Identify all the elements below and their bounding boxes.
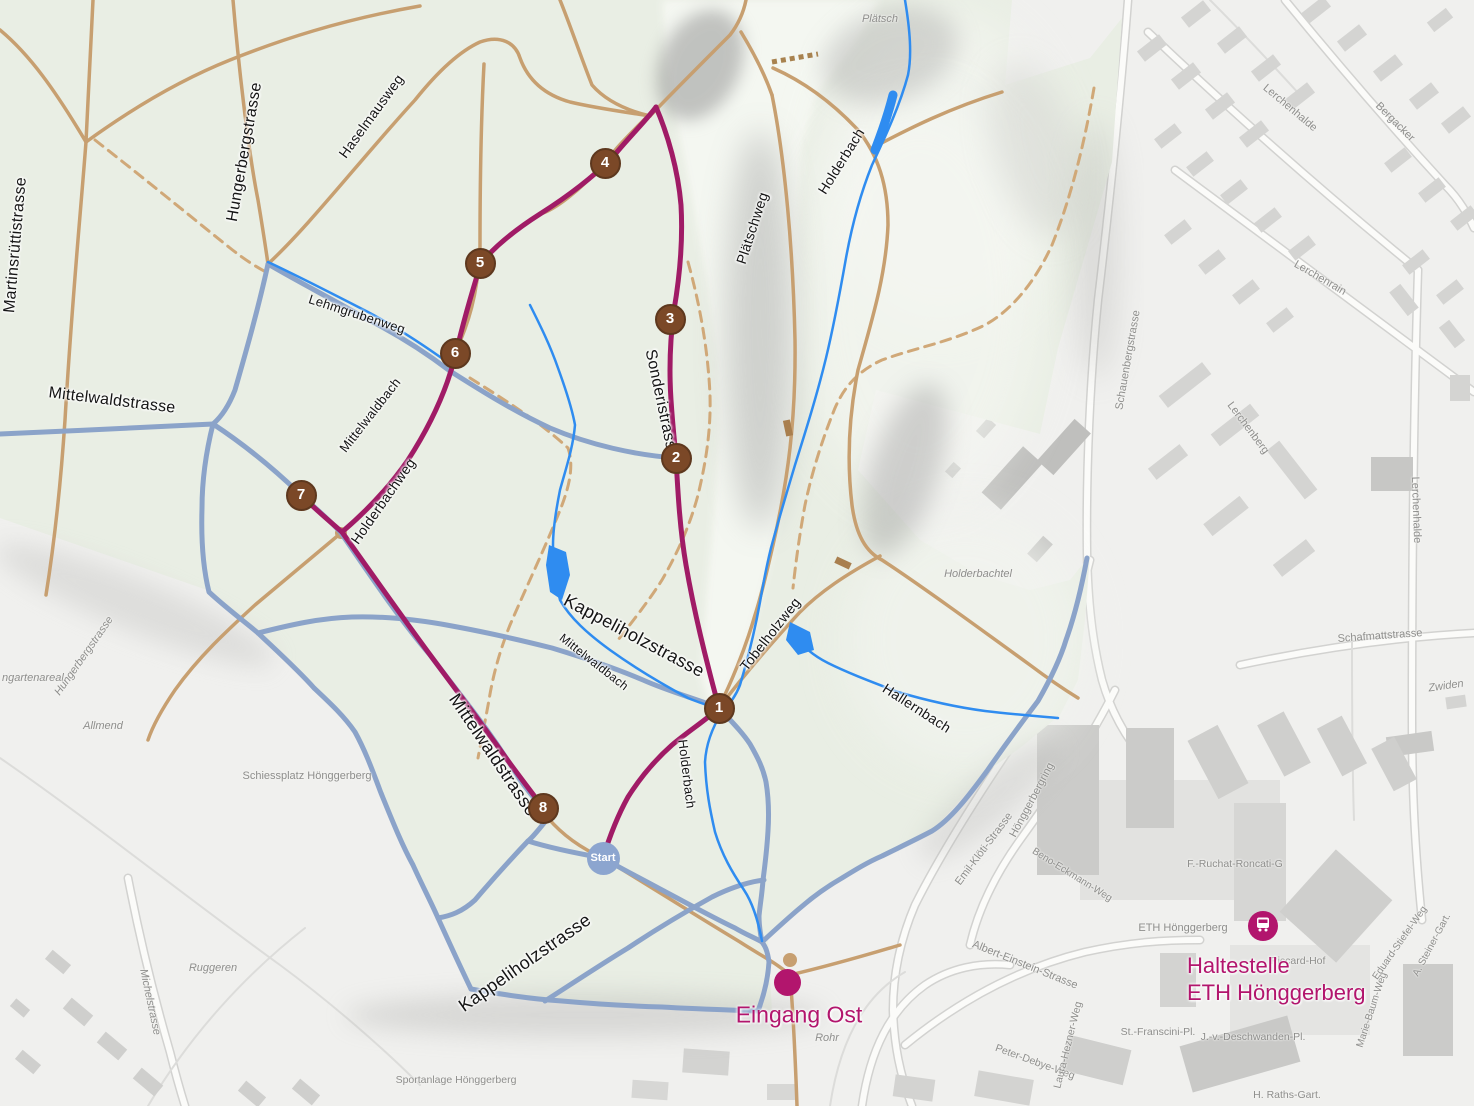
street-label-raths-gart: H. Raths-Gart. bbox=[1253, 1089, 1321, 1101]
bus-stop-label-line2: ETH Hönggerberg bbox=[1187, 979, 1366, 1006]
map-canvas[interactable]: Martinsrüttistrasse Hungerbergstrasse Ha… bbox=[0, 0, 1474, 1106]
area-label-ruggeren: Ruggeren bbox=[189, 962, 237, 974]
route-marker-5[interactable]: 5 bbox=[465, 248, 496, 279]
eingang-ost-label: Eingang Ost bbox=[736, 1002, 863, 1029]
area-label-allmend: Allmend bbox=[83, 720, 123, 732]
area-label-sportanlage: Sportanlage Hönggerberg bbox=[396, 1074, 517, 1086]
street-label-f-ruchat-roncati: F.-Ruchat-Roncati-G bbox=[1187, 858, 1283, 870]
bus-icon bbox=[1253, 914, 1273, 939]
route-marker-6[interactable]: 6 bbox=[440, 338, 471, 369]
route-marker-4[interactable]: 4 bbox=[590, 148, 621, 179]
area-label-eth-hoenggerberg: ETH Hönggerberg bbox=[1138, 922, 1227, 934]
route-start-badge[interactable]: Start bbox=[587, 842, 620, 875]
street-label-lerchenhalde-lower: Lerchenhalde bbox=[1409, 476, 1423, 543]
area-label-gartenareal: ngartenareal bbox=[2, 672, 64, 684]
map-graphics bbox=[0, 0, 1474, 1106]
eingang-ost-dot[interactable] bbox=[774, 969, 801, 996]
street-label-franscini-pl: St.-Franscini-Pl. bbox=[1121, 1026, 1196, 1038]
route-marker-8[interactable]: 8 bbox=[528, 793, 559, 824]
area-label-plaetsch: Plätsch bbox=[862, 13, 898, 25]
bus-stop-label-line1: Haltestelle bbox=[1187, 952, 1366, 979]
route-marker-7[interactable]: 7 bbox=[286, 480, 317, 511]
route-marker-1[interactable]: 1 bbox=[704, 693, 735, 724]
route-marker-3[interactable]: 3 bbox=[655, 304, 686, 335]
bus-stop-label: Haltestelle ETH Hönggerberg bbox=[1187, 952, 1366, 1006]
area-label-schiessplatz: Schiessplatz Hönggerberg bbox=[242, 770, 371, 782]
area-label-holderbachtel: Holderbachtel bbox=[944, 568, 1012, 580]
route-marker-2[interactable]: 2 bbox=[661, 443, 692, 474]
bus-stop-badge[interactable] bbox=[1248, 911, 1278, 941]
street-label-deschwanden-pl: J.-v.-Deschwanden-Pl. bbox=[1201, 1031, 1306, 1043]
area-label-rohr: Rohr bbox=[815, 1032, 839, 1044]
